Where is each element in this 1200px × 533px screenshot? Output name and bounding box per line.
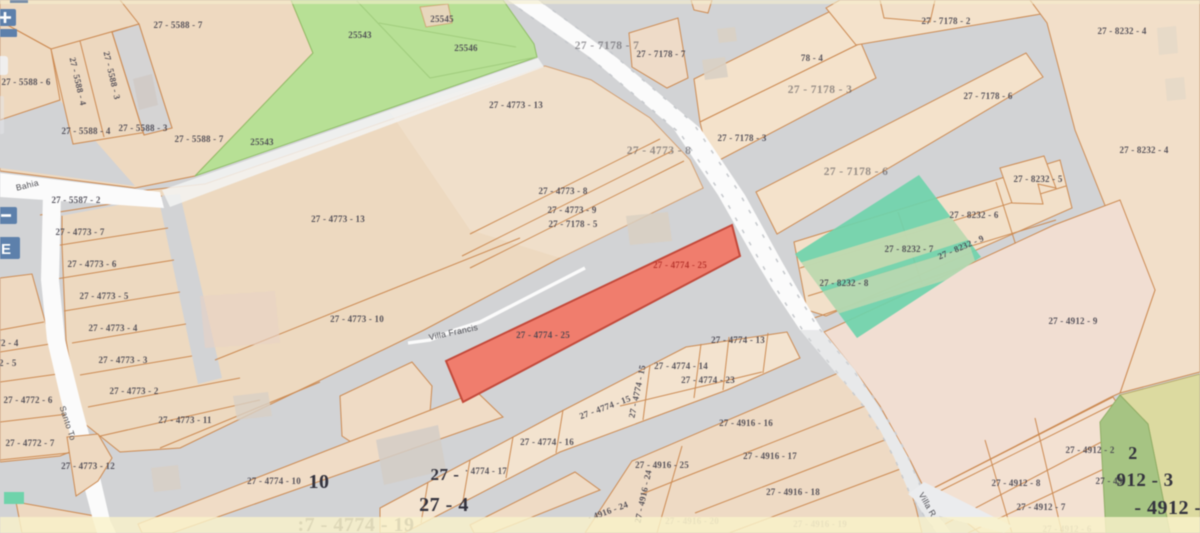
svg-text:27 - 4774 - 25: 27 - 4774 - 25 [516, 330, 570, 340]
svg-text:27 - 4773 - 6: 27 - 4773 - 6 [67, 259, 116, 269]
svg-text:27 - 8232 - 4: 27 - 8232 - 4 [1119, 145, 1168, 155]
svg-text:27 - 4916 - 25: 27 - 4916 - 25 [635, 460, 689, 470]
svg-text:27 - 7178 - 3: 27 - 7178 - 3 [717, 133, 766, 143]
svg-text:25545: 25545 [430, 14, 454, 24]
svg-text:27 - 8232 - 5: 27 - 8232 - 5 [1013, 174, 1062, 184]
svg-text:25546: 25546 [454, 43, 478, 53]
svg-text:27 - 7178 - 7: 27 - 7178 - 7 [575, 40, 640, 52]
svg-text:27 - 4774 - 14: 27 - 4774 - 14 [654, 361, 708, 371]
svg-text:- 4912 - 4: - 4912 - 4 [1134, 497, 1200, 519]
svg-text:27 - 4912 - 2: 27 - 4912 - 2 [1065, 445, 1114, 455]
svg-text:27 - 7178 - 3: 27 - 7178 - 3 [788, 84, 853, 96]
svg-text:27 -: 27 - [431, 465, 460, 484]
svg-text:27 - 7178 - 6: 27 - 7178 - 6 [963, 91, 1012, 101]
svg-text:27 - 4916 - 18: 27 - 4916 - 18 [766, 487, 820, 497]
svg-text:27 - 8232 - 8: 27 - 8232 - 8 [819, 278, 868, 288]
svg-text:27 - 4916 - 16: 27 - 4916 - 16 [719, 418, 773, 428]
svg-text:27 - 5588 - 3: 27 - 5588 - 3 [118, 123, 167, 133]
svg-text:27 - 4772 - 6: 27 - 4772 - 6 [3, 395, 52, 405]
svg-text:27 - 7178 - 2: 27 - 7178 - 2 [921, 16, 970, 26]
svg-text:27 - 4774 - 10: 27 - 4774 - 10 [247, 476, 301, 486]
svg-text:27 - 4916 - 17: 27 - 4916 - 17 [743, 451, 797, 461]
svg-text:27 - 8232 - 6: 27 - 8232 - 6 [949, 210, 998, 220]
svg-text:27 - 4773 - 10: 27 - 4773 - 10 [330, 314, 384, 324]
svg-text:27 - 5588 - 7: 27 - 5588 - 7 [174, 134, 223, 144]
svg-text:27 - 4: 27 - 4 [419, 494, 469, 516]
svg-text:27 - 7178 - 5: 27 - 7178 - 5 [548, 219, 597, 229]
svg-text:10: 10 [309, 471, 330, 493]
svg-text:27 - 4773 - 8: 27 - 4773 - 8 [627, 145, 692, 157]
svg-text:27 - 4773 - 11: 27 - 4773 - 11 [158, 415, 212, 425]
svg-text:27 - 4774 - 16: 27 - 4774 - 16 [520, 437, 574, 447]
svg-text:25543: 25543 [250, 137, 274, 147]
svg-text:E: E [1, 241, 11, 258]
svg-text:912 - 3: 912 - 3 [1116, 470, 1173, 491]
svg-text:27 - 4773 - 13: 27 - 4773 - 13 [489, 100, 543, 110]
svg-text:27 - 4773 - 4: 27 - 4773 - 4 [88, 323, 137, 333]
svg-text:27 - 4772 - 4: 27 - 4772 - 4 [0, 338, 19, 348]
svg-text:27 - 4773 - 13: 27 - 4773 - 13 [311, 214, 365, 224]
svg-text:27 - 4773 - 7: 27 - 4773 - 7 [55, 227, 104, 237]
svg-text:27 - 5588 - 6: 27 - 5588 - 6 [1, 77, 50, 87]
svg-text:27 - 5588 - 4: 27 - 5588 - 4 [61, 126, 110, 136]
svg-text:78 - 4: 78 - 4 [801, 53, 823, 63]
svg-text:27 - 4773 - 5: 27 - 4773 - 5 [79, 291, 128, 301]
svg-text:27 - 4774 - 23: 27 - 4774 - 23 [681, 375, 735, 385]
svg-text:27 - 4773 - 9: 27 - 4773 - 9 [547, 205, 596, 215]
svg-text:27 - 4912 - 9: 27 - 4912 - 9 [1048, 316, 1097, 326]
svg-text:27 - 5587 - 2: 27 - 5587 - 2 [51, 195, 100, 205]
svg-text:27 - 8232 - 4: 27 - 8232 - 4 [1097, 26, 1146, 36]
svg-text:27 - 4773 - 2: 27 - 4773 - 2 [109, 386, 158, 396]
svg-text:27 - 4773 - 3: 27 - 4773 - 3 [98, 355, 147, 365]
svg-text:25543: 25543 [348, 30, 372, 40]
svg-text:27 - 4912 - 7: 27 - 4912 - 7 [1016, 502, 1065, 512]
svg-text:27 - 4912 - 8: 27 - 4912 - 8 [991, 478, 1040, 488]
svg-text:2: 2 [1128, 443, 1138, 463]
svg-text:27 - 4774 - 25: 27 - 4774 - 25 [653, 260, 707, 270]
svg-text:27 - 7178 - 7: 27 - 7178 - 7 [636, 49, 685, 59]
svg-text:27 - 4774 - 13: 27 - 4774 - 13 [711, 335, 765, 345]
svg-text:27 - 8232 - 7: 27 - 8232 - 7 [884, 244, 933, 254]
svg-text:27 - 4773 - 8: 27 - 4773 - 8 [538, 186, 587, 196]
svg-text:27 - 4772 - 5: 27 - 4772 - 5 [0, 358, 17, 368]
svg-text:27 - 5588 - 7: 27 - 5588 - 7 [153, 20, 202, 30]
svg-text:· 4774 - 17: · 4774 - 17 [465, 466, 507, 476]
svg-text:27 - 4772 - 7: 27 - 4772 - 7 [5, 438, 54, 448]
svg-text:27 - 7178 - 6: 27 - 7178 - 6 [824, 166, 889, 178]
svg-text:27 - 4773 - 12: 27 - 4773 - 12 [61, 461, 115, 471]
